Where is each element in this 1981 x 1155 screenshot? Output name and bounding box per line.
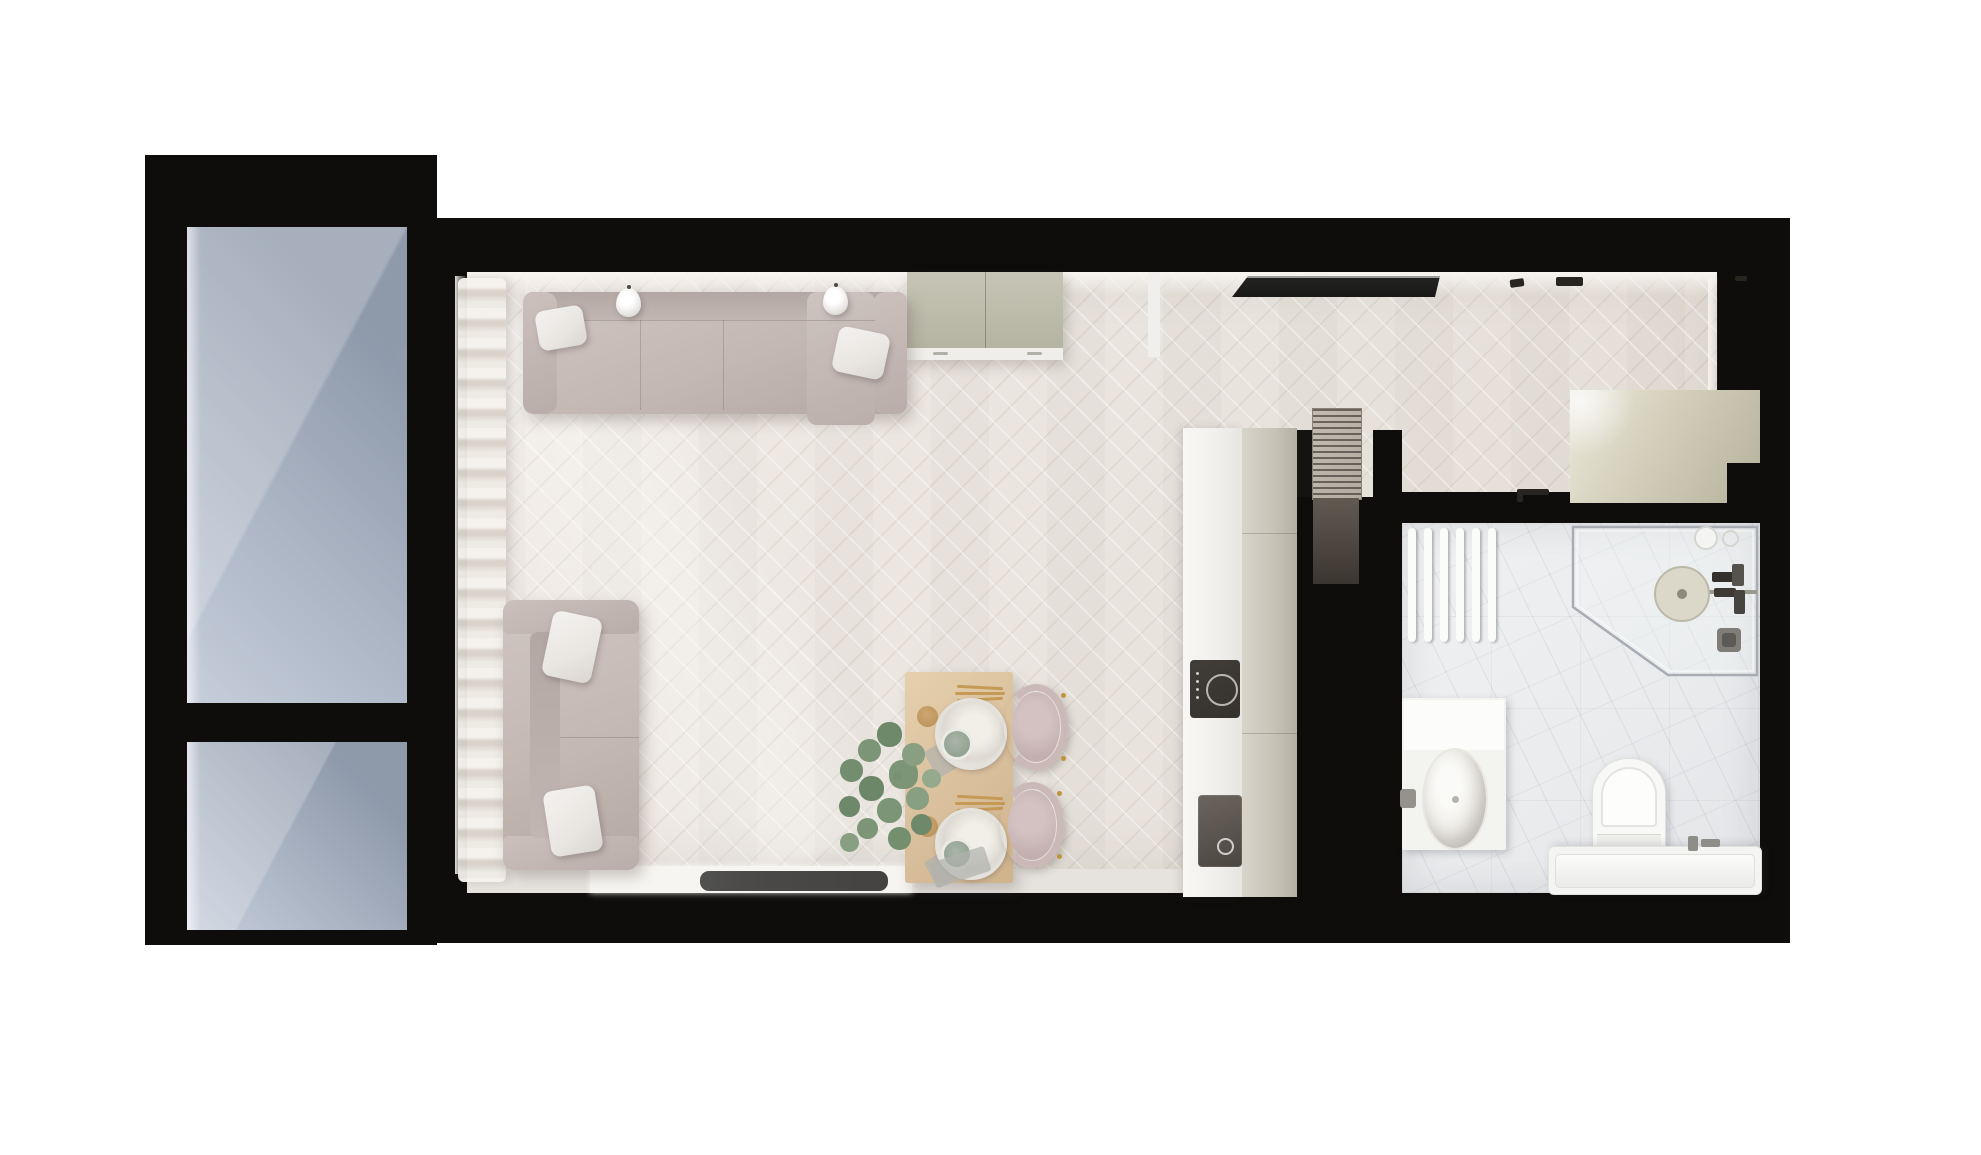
kitchen-end-pilaster: [1148, 272, 1160, 357]
cup: [941, 728, 973, 760]
pendant-lamp: [616, 288, 641, 317]
sofa-pillow: [542, 784, 604, 857]
sideboard: [907, 272, 1063, 360]
top-wall: [437, 218, 1790, 272]
entry-door-leaf: [1556, 277, 1583, 286]
balcony-floor-upper: [187, 227, 407, 703]
cabinet-shadow-strip: [1295, 430, 1312, 497]
towel-radiator-bar: [1472, 528, 1480, 642]
towel-radiator-bar: [1408, 528, 1416, 642]
pendant-lamp: [823, 286, 848, 315]
shadowed-cabinet-block: [1313, 498, 1359, 584]
balcony-lower-highlight: [187, 742, 201, 930]
kitchen-sink: [1198, 795, 1242, 867]
sofa-bottom: [503, 600, 639, 870]
floor-plan-canvas: [0, 0, 1981, 1155]
washbasin: [1422, 748, 1488, 850]
toiletry-jar: [1694, 526, 1718, 550]
dining-chair: [1000, 782, 1064, 868]
towel-radiator: [1408, 528, 1496, 642]
sink-faucet: [1217, 838, 1234, 855]
bottom-wall: [407, 893, 1790, 943]
vanity-counter: [1404, 700, 1504, 750]
kitchen-tall-cabinets: [1242, 428, 1297, 897]
balcony-upper-highlight: [187, 227, 201, 703]
chair-seat: [1012, 692, 1060, 762]
chair-seat: [1008, 790, 1056, 860]
towel-radiator-bar: [1440, 528, 1448, 642]
bathtub: [1548, 846, 1762, 895]
curtain: [458, 278, 506, 882]
shower-mixer: [1712, 564, 1754, 614]
bathtub-basin: [1555, 854, 1755, 888]
balcony-floor-lower: [187, 742, 407, 930]
dining-table: [905, 672, 1013, 883]
dining-chair: [1004, 684, 1068, 770]
louvered-radiator-unit: [1312, 408, 1362, 500]
towel-radiator-bar: [1456, 528, 1464, 642]
doormat: [700, 871, 888, 891]
bathroom-door-bracket-leg: [1517, 489, 1523, 502]
toilet: [1592, 758, 1666, 854]
tub-spout: [1701, 839, 1720, 847]
towel-radiator-bar: [1488, 528, 1496, 642]
bathroom-accessory: [1717, 628, 1741, 652]
place-setting: [905, 672, 1013, 780]
sideboard-top: [907, 272, 1063, 348]
kitchen-counter: [1183, 428, 1242, 897]
sideboard-front: [907, 348, 1063, 360]
right-wall-lit-face: [1708, 278, 1718, 390]
entry-wall-notch: [1727, 463, 1760, 503]
sofa-top: [523, 292, 907, 414]
induction-hob: [1190, 660, 1240, 718]
toiletry-jar-small: [1722, 530, 1739, 547]
basin-faucet: [1400, 789, 1416, 808]
hallway-wall-stub: [1373, 430, 1402, 503]
toilet-seat: [1601, 767, 1657, 827]
sofa-pillow: [534, 304, 588, 352]
plant: [893, 772, 902, 781]
hob-ring: [1206, 674, 1238, 706]
towel-radiator-bar: [1424, 528, 1432, 642]
wall-tv-panel: [1232, 276, 1440, 297]
tub-faucet: [1688, 836, 1698, 851]
door-stop-mark: [1735, 276, 1747, 281]
